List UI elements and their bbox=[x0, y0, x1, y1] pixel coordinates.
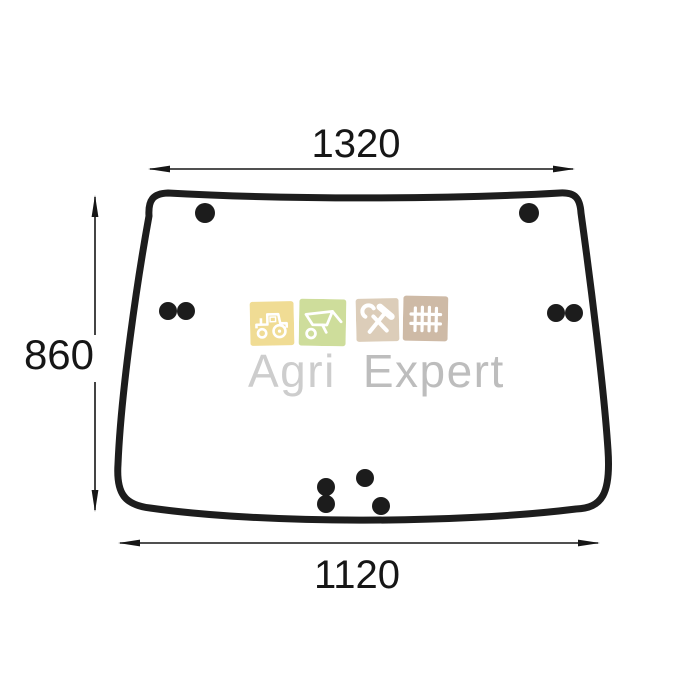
mounting-hole bbox=[317, 478, 335, 496]
dimension-top bbox=[148, 166, 575, 173]
technical-drawing: 1320 860 1120 bbox=[0, 0, 700, 700]
mounting-hole bbox=[519, 203, 539, 223]
arrowhead-left-icon bbox=[148, 166, 170, 173]
mounting-hole bbox=[159, 302, 177, 320]
arrowhead-left-icon bbox=[118, 540, 140, 547]
arrowhead-down-icon bbox=[92, 490, 99, 512]
arrowhead-right-icon bbox=[553, 166, 575, 173]
mounting-hole bbox=[372, 497, 390, 515]
mounting-hole bbox=[547, 304, 565, 322]
mounting-hole bbox=[356, 469, 374, 487]
mounting-holes bbox=[159, 203, 583, 515]
mounting-hole bbox=[565, 304, 583, 322]
arrowhead-up-icon bbox=[92, 195, 99, 217]
product-image: 1320 860 1120 bbox=[0, 0, 700, 700]
dimension-label-left: 860 bbox=[24, 331, 94, 378]
dimension-label-bottom: 1120 bbox=[314, 553, 400, 597]
mounting-hole bbox=[177, 302, 195, 320]
mounting-hole bbox=[195, 203, 215, 223]
dimension-label-top: 1320 bbox=[312, 122, 401, 166]
arrowhead-right-icon bbox=[578, 540, 600, 547]
dimension-bottom bbox=[118, 540, 600, 547]
mounting-hole bbox=[317, 495, 335, 513]
